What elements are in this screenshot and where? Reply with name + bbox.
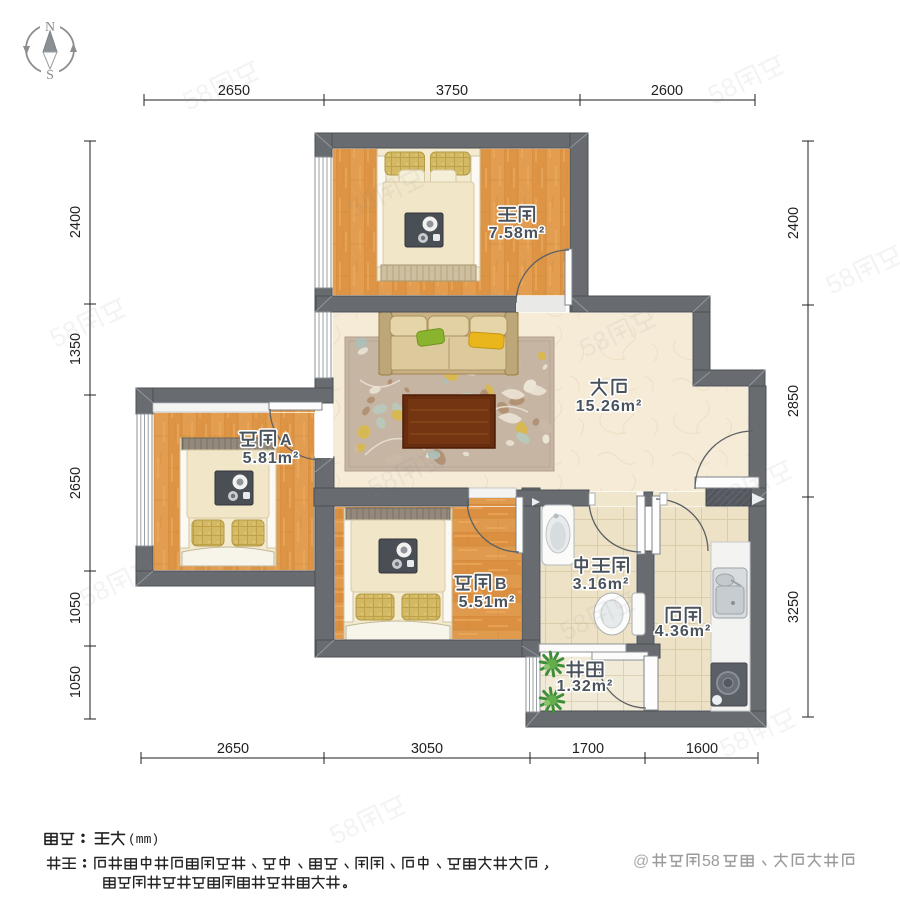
svg-text:1600: 1600 [686, 741, 718, 757]
svg-text:1050: 1050 [68, 666, 84, 698]
svg-text:@: @ [633, 853, 649, 870]
svg-text:2650: 2650 [217, 741, 249, 757]
svg-text:S: S [46, 68, 54, 83]
svg-text:2400: 2400 [786, 207, 802, 239]
svg-text:5.51m²: 5.51m² [459, 594, 516, 611]
svg-text:3750: 3750 [436, 83, 468, 99]
svg-text:3.16m²: 3.16m² [573, 576, 630, 593]
svg-text:N: N [45, 20, 55, 35]
svg-text:1.32m²: 1.32m² [557, 678, 614, 695]
svg-text:58: 58 [702, 853, 720, 870]
svg-text:4.36m²: 4.36m² [655, 623, 712, 640]
svg-text:2650: 2650 [68, 467, 84, 499]
svg-text:7.58m²: 7.58m² [489, 225, 546, 242]
svg-text:3250: 3250 [786, 591, 802, 623]
svg-text:2850: 2850 [786, 385, 802, 417]
svg-text:15.26m²: 15.26m² [576, 398, 643, 415]
svg-text:2400: 2400 [68, 206, 84, 238]
svg-text:A: A [280, 432, 292, 449]
svg-text:B: B [495, 576, 507, 593]
svg-text:1700: 1700 [572, 741, 604, 757]
svg-text:3050: 3050 [411, 741, 443, 757]
svg-text:5.81m²: 5.81m² [243, 450, 300, 467]
svg-text:(mm): (mm) [128, 832, 159, 847]
svg-text:2600: 2600 [651, 83, 683, 99]
